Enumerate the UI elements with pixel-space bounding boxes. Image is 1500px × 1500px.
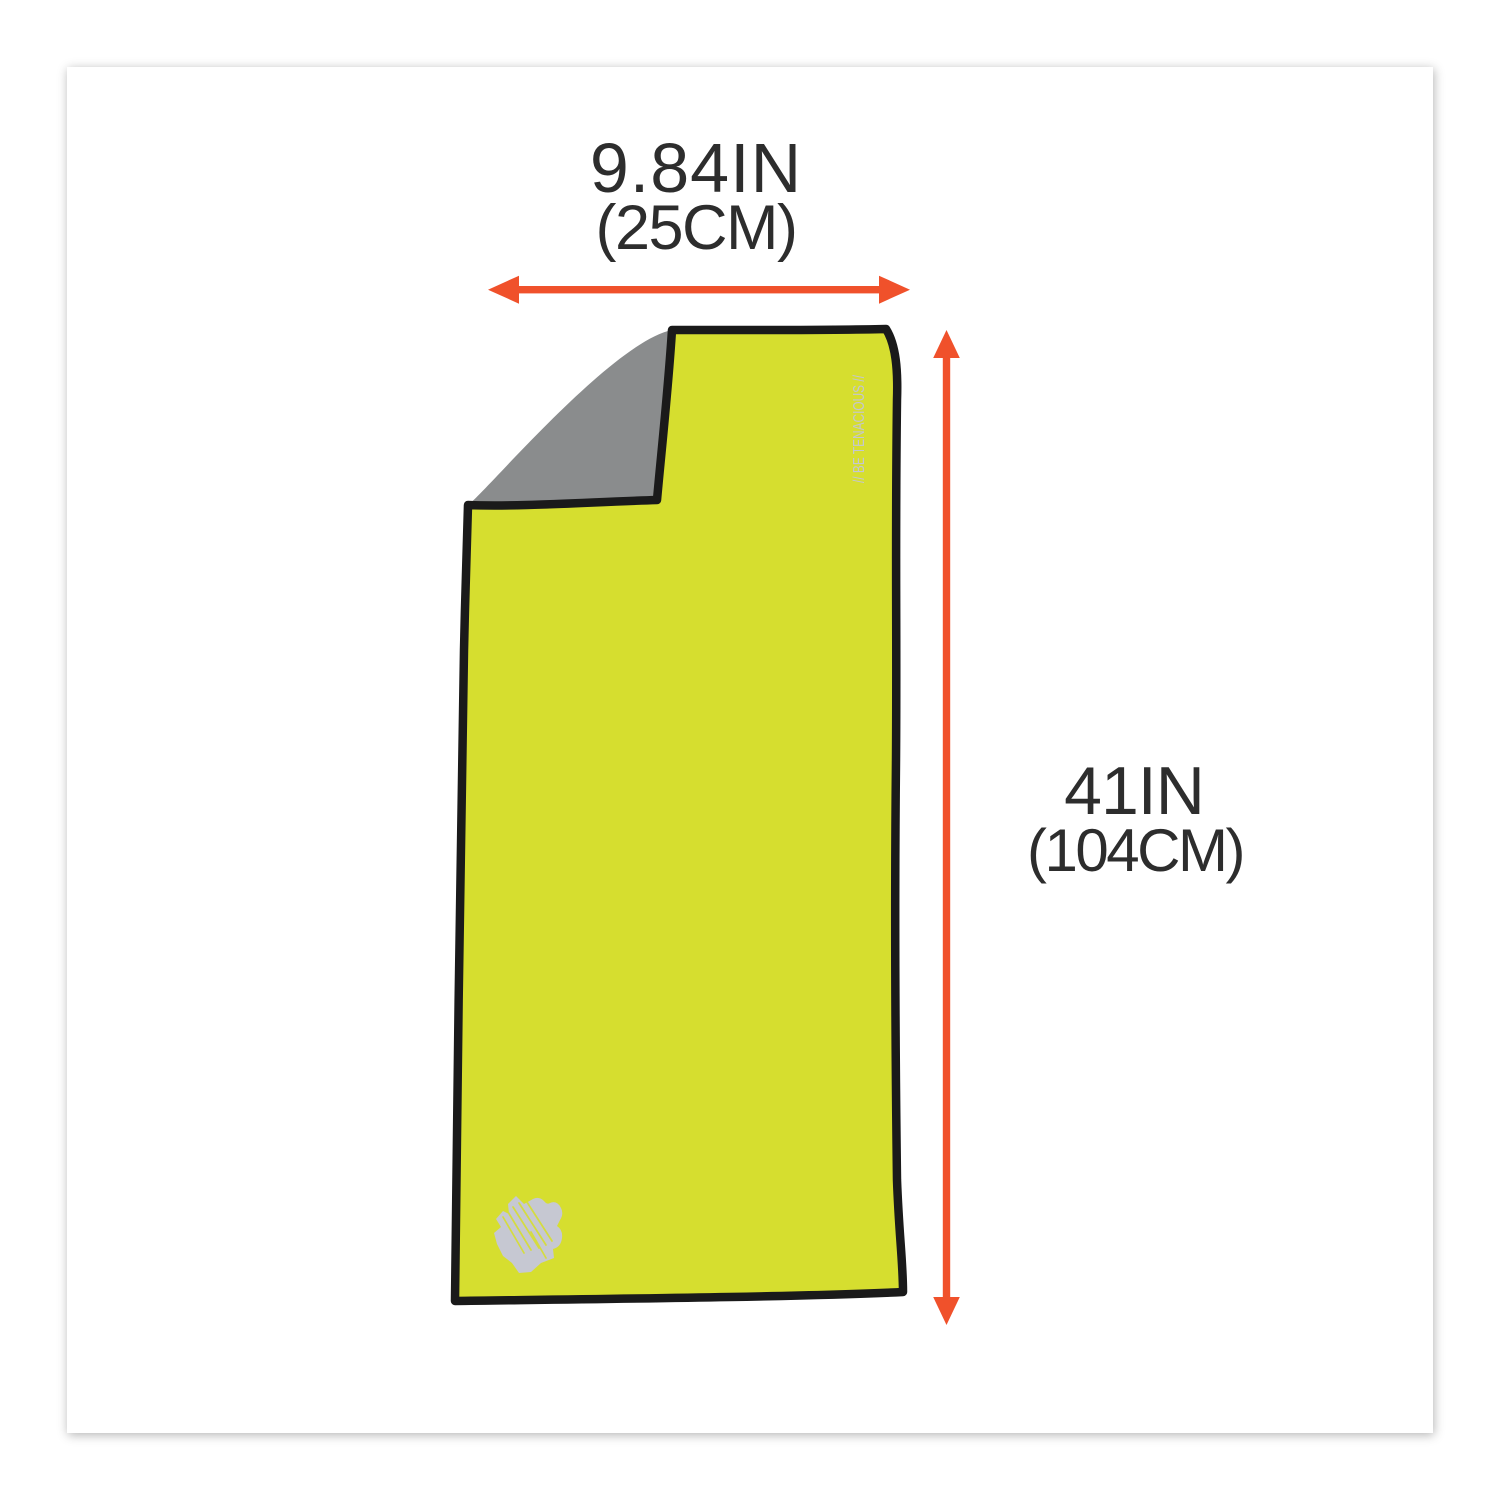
svg-text:// BE TENACIOUS //: // BE TENACIOUS // — [851, 375, 868, 483]
